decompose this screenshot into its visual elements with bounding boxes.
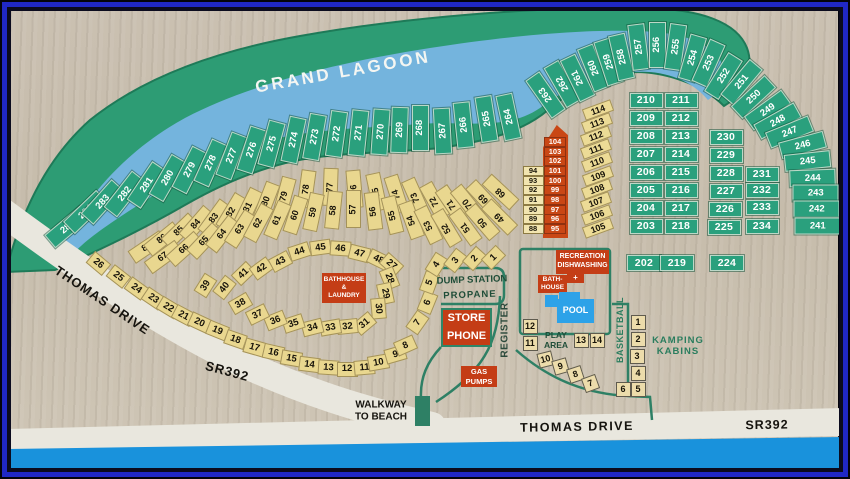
site-242: 242 xyxy=(793,201,839,218)
site-216: 216 xyxy=(665,183,698,198)
site-224: 224 xyxy=(710,255,744,271)
site-number: 265 xyxy=(480,110,492,127)
site-number: 253 xyxy=(700,54,715,72)
walkway-to-beach-label: WALKWAYTO BEACH xyxy=(355,400,407,423)
site-number: 98 xyxy=(551,196,559,204)
site-number: 100 xyxy=(549,177,562,185)
site-number: 12 xyxy=(525,322,535,331)
site-number: 10 xyxy=(372,356,384,367)
site-88: 88 xyxy=(523,224,544,234)
site-number: 40 xyxy=(217,280,231,294)
site-226: 226 xyxy=(709,202,742,217)
site-number: 1 xyxy=(488,252,498,262)
site-number: 6 xyxy=(422,298,433,306)
campground-map-sign: BATHHOUSE&LAUNDRYSTOREPHONEGASPUMPSRECRE… xyxy=(0,0,850,479)
thomas-drive-bottom-label: THOMAS DRIVE xyxy=(520,419,634,435)
site-number: 218 xyxy=(672,221,690,232)
site-number: 216 xyxy=(672,185,690,196)
site-269: 269 xyxy=(390,107,409,154)
site-208: 208 xyxy=(630,129,663,144)
site-number: 209 xyxy=(637,113,655,124)
gas-pumps-box-text: GAS xyxy=(471,367,487,376)
site-number: 93 xyxy=(529,177,537,185)
site-number: 208 xyxy=(637,131,655,142)
site-number: 37 xyxy=(250,307,264,320)
site-number: 210 xyxy=(637,95,655,106)
site-number: 270 xyxy=(375,124,386,140)
site-number: 55 xyxy=(386,209,397,221)
store-phone-box-text: PHONE xyxy=(447,330,486,344)
site-206: 206 xyxy=(630,165,663,180)
site-number: 36 xyxy=(268,314,281,327)
site-number: 60 xyxy=(289,209,301,221)
site-number: 203 xyxy=(637,221,655,232)
basketball-label-line: BASKETBALL xyxy=(615,297,625,363)
site-number: 257 xyxy=(632,39,643,56)
site-204: 204 xyxy=(630,201,663,216)
bathhouse-2-box-text: HOUSE xyxy=(541,284,564,292)
site-102: 102 xyxy=(544,156,566,166)
bathhouse-2-box-text: BATH- xyxy=(543,276,563,284)
site-number: 52 xyxy=(440,221,453,234)
site-number: 43 xyxy=(273,254,287,267)
site-number: 3 xyxy=(634,352,639,361)
site-number: 35 xyxy=(286,317,299,329)
pool-main: POOL xyxy=(557,299,594,323)
site-2: 2 xyxy=(631,332,646,347)
site-number: 202 xyxy=(635,258,653,269)
site-number: 18 xyxy=(228,333,241,345)
site-number: 271 xyxy=(352,125,363,142)
propane-label: PROPANE xyxy=(443,290,497,303)
site-number: 32 xyxy=(341,321,353,332)
site-number: 211 xyxy=(672,95,690,106)
site-number: 243 xyxy=(807,188,823,198)
site-number: 9 xyxy=(556,361,563,371)
site-11: 11 xyxy=(523,336,538,351)
site-57: 57 xyxy=(346,190,361,228)
site-number: 11 xyxy=(525,339,535,348)
site-number: 44 xyxy=(292,245,305,257)
site-number: 104 xyxy=(549,138,562,146)
site-4: 4 xyxy=(631,366,646,381)
walkway-to-beach-label-line: WALKWAY xyxy=(355,400,407,412)
site-number: 266 xyxy=(457,117,468,134)
site-104: 104 xyxy=(544,137,566,147)
bathhouse-laundry-box-text: & xyxy=(342,284,347,292)
site-209: 209 xyxy=(630,111,663,126)
site-225: 225 xyxy=(708,220,741,235)
site-233: 233 xyxy=(746,200,779,215)
recreation-dishwashing-box: RECREATIONDISHWASHING xyxy=(556,250,609,274)
site-number: 254 xyxy=(685,49,699,67)
site-270: 270 xyxy=(370,108,390,155)
site-95: 95 xyxy=(544,224,566,234)
propane-label-line: PROPANE xyxy=(443,290,497,303)
site-229: 229 xyxy=(710,148,743,163)
site-number: 2 xyxy=(635,335,640,344)
site-number: 31 xyxy=(357,316,371,330)
site-number: 24 xyxy=(129,281,143,295)
site-number: 1 xyxy=(635,318,640,327)
site-232: 232 xyxy=(746,183,779,198)
site-number: 62 xyxy=(252,216,265,229)
site-91: 91 xyxy=(523,195,544,205)
site-number: 205 xyxy=(637,185,655,196)
site-213: 213 xyxy=(665,129,698,144)
sr392-bottom-label: SR392 xyxy=(745,417,788,432)
site-89: 89 xyxy=(523,214,544,224)
site-number: 5 xyxy=(424,278,435,286)
site-number: 264 xyxy=(502,108,515,125)
site-number: 263 xyxy=(537,86,554,104)
site-number: 213 xyxy=(672,131,690,142)
store-phone-box: STOREPHONE xyxy=(441,308,492,347)
site-number: 7 xyxy=(586,378,594,388)
site-number: 214 xyxy=(672,149,690,160)
bathhouse-laundry-box-text: BATHHOUSE xyxy=(324,276,365,284)
kamping-kabins-label: KAMPINGKABINS xyxy=(652,336,704,358)
site-number: 7 xyxy=(412,317,423,327)
site-number: 6 xyxy=(620,385,625,394)
kamping-kabins-label-line: KABINS xyxy=(652,347,704,358)
site-number: 13 xyxy=(576,336,586,345)
site-13: 13 xyxy=(574,333,589,348)
site-number: 33 xyxy=(324,321,336,332)
site-number: 15 xyxy=(285,352,297,363)
site-number: 242 xyxy=(808,204,824,214)
site-number: 246 xyxy=(793,138,811,151)
site-number: 255 xyxy=(669,38,681,55)
site-number: 13 xyxy=(322,362,333,372)
site-215: 215 xyxy=(665,165,698,180)
site-5: 5 xyxy=(631,382,646,397)
site-number: 5 xyxy=(635,385,640,394)
walkway-strip xyxy=(415,396,430,426)
site-number: 273 xyxy=(308,128,320,145)
site-number: 3 xyxy=(450,255,461,265)
site-number: 49 xyxy=(492,210,505,223)
site-number: 50 xyxy=(475,215,488,228)
site-number: 39 xyxy=(198,278,212,292)
site-number: 88 xyxy=(529,225,537,233)
site-number: 228 xyxy=(717,168,735,179)
site-number: 68 xyxy=(493,185,506,198)
site-number: 204 xyxy=(637,203,655,214)
site-number: 251 xyxy=(732,73,749,91)
store-phone-box-text: STORE xyxy=(448,312,486,326)
walkway-to-beach-label-line: TO BEACH xyxy=(355,411,407,423)
thomas-drive-bottom-label-line: THOMAS DRIVE xyxy=(520,419,634,435)
site-number: 17 xyxy=(248,341,261,353)
site-210: 210 xyxy=(630,93,663,108)
site-number: 94 xyxy=(529,167,537,175)
site-number: 99 xyxy=(551,186,559,194)
site-number: 234 xyxy=(753,221,771,232)
site-number: 227 xyxy=(717,186,735,197)
site-219: 219 xyxy=(660,255,694,271)
site-number: 91 xyxy=(529,196,537,204)
gas-pumps-box-text: PUMPS xyxy=(466,377,493,386)
site-number: 233 xyxy=(753,202,771,213)
site-number: 4 xyxy=(431,259,442,269)
site-number: 206 xyxy=(637,167,655,178)
site-number: 14 xyxy=(303,359,315,370)
site-230: 230 xyxy=(710,130,743,145)
site-number: 207 xyxy=(637,149,655,160)
site-1: 1 xyxy=(631,315,646,330)
site-number: 46 xyxy=(334,243,345,253)
store-walkway-line xyxy=(421,347,441,398)
pool-main-text: POOL xyxy=(563,305,589,316)
site-number: 19 xyxy=(210,324,223,337)
site-number: 276 xyxy=(244,141,258,159)
site-202: 202 xyxy=(627,255,661,271)
site-207: 207 xyxy=(630,147,663,162)
play-area-label-line: AREA xyxy=(544,341,568,351)
site-number: 10 xyxy=(539,353,551,364)
site-number: 58 xyxy=(328,205,338,216)
site-number: 278 xyxy=(202,154,217,172)
site-94: 94 xyxy=(523,166,544,176)
site-268: 268 xyxy=(412,105,429,151)
site-234: 234 xyxy=(746,219,779,234)
site-number: 90 xyxy=(529,206,537,214)
recreation-cross-tab-text: + xyxy=(573,273,578,283)
site-number: 226 xyxy=(716,204,734,215)
site-227: 227 xyxy=(710,184,743,199)
site-number: 45 xyxy=(314,242,326,253)
bathhouse-laundry-box-text: LAUNDRY xyxy=(328,292,360,300)
site-96: 96 xyxy=(544,214,566,224)
site-12: 12 xyxy=(523,319,538,334)
site-98: 98 xyxy=(544,195,566,205)
site-number: 38 xyxy=(233,296,247,310)
site-number: 256 xyxy=(652,37,662,53)
site-number: 4 xyxy=(635,369,640,378)
site-10: 10 xyxy=(536,350,554,368)
site-number: 245 xyxy=(799,155,816,166)
site-number: 97 xyxy=(551,206,559,214)
site-number: 215 xyxy=(672,167,690,178)
site-number: 56 xyxy=(368,205,378,216)
site-number: 96 xyxy=(551,215,559,223)
site-number: 260 xyxy=(586,59,601,77)
site-number: 20 xyxy=(192,315,206,328)
site-number: 241 xyxy=(809,221,825,231)
site-101: 101 xyxy=(544,166,566,176)
site-212: 212 xyxy=(665,111,698,126)
site-256: 256 xyxy=(649,22,666,68)
site-241: 241 xyxy=(794,218,840,235)
site-number: 103 xyxy=(549,148,562,156)
site-214: 214 xyxy=(665,147,698,162)
site-number: 212 xyxy=(672,113,690,124)
site-6: 6 xyxy=(616,382,631,397)
site-267: 267 xyxy=(432,108,451,155)
site-number: 232 xyxy=(753,185,771,196)
site-number: 219 xyxy=(668,258,686,269)
bathhouse-laundry-box: BATHHOUSE&LAUNDRY xyxy=(322,273,366,303)
site-number: 275 xyxy=(264,135,277,153)
site-211: 211 xyxy=(665,93,698,108)
gas-pumps-box: GASPUMPS xyxy=(461,366,497,387)
site-number: 51 xyxy=(458,220,471,233)
site-number: 47 xyxy=(353,247,366,259)
recreation-cross-tab: + xyxy=(567,273,584,283)
site-number: 274 xyxy=(287,131,300,148)
recreation-dishwashing-box-text: RECREATION xyxy=(560,253,606,262)
site-number: 8 xyxy=(571,369,579,379)
site-number: 277 xyxy=(224,147,239,165)
site-217: 217 xyxy=(665,201,698,216)
site-3: 3 xyxy=(630,349,645,364)
site-number: 217 xyxy=(672,203,690,214)
site-14: 14 xyxy=(590,333,605,348)
bathhouse-2-box: BATH-HOUSE xyxy=(538,275,567,293)
site-number: 225 xyxy=(715,222,733,233)
basketball-label: BASKETBALL xyxy=(615,297,625,363)
site-number: 26 xyxy=(91,256,105,270)
sr392-bottom-label-line: SR392 xyxy=(745,417,788,432)
site-231: 231 xyxy=(746,167,779,182)
site-number: 229 xyxy=(717,150,735,161)
site-243: 243 xyxy=(792,185,838,202)
site-number: 95 xyxy=(551,225,559,233)
site-number: 42 xyxy=(254,261,268,275)
site-number: 61 xyxy=(271,214,283,227)
site-number: 8 xyxy=(401,340,410,351)
site-number: 2 xyxy=(469,253,480,263)
site-number: 34 xyxy=(306,321,319,333)
play-area-label: PLAYAREA xyxy=(544,331,568,351)
site-number: 16 xyxy=(267,346,279,358)
site-number: 272 xyxy=(330,125,342,142)
site-number: 14 xyxy=(592,336,602,345)
site-99: 99 xyxy=(544,185,566,195)
site-number: 231 xyxy=(753,169,771,180)
site-number: 30 xyxy=(373,302,383,313)
site-number: 101 xyxy=(549,167,562,175)
site-number: 267 xyxy=(437,123,447,139)
site-218: 218 xyxy=(665,219,698,234)
site-number: 268 xyxy=(415,120,425,136)
site-number: 224 xyxy=(718,258,736,269)
site-number: 230 xyxy=(717,132,735,143)
site-205: 205 xyxy=(630,183,663,198)
site-number: 269 xyxy=(394,122,404,138)
site-228: 228 xyxy=(710,166,743,181)
site-92: 92 xyxy=(523,185,544,195)
site-number: 59 xyxy=(308,206,319,218)
site-number: 244 xyxy=(804,173,820,183)
pool-kiddie xyxy=(545,295,558,307)
site-45: 45 xyxy=(309,238,332,256)
site-203: 203 xyxy=(630,219,663,234)
site-number: 102 xyxy=(549,157,562,165)
site-number: 12 xyxy=(342,364,353,374)
recreation-dishwashing-box-text: DISHWASHING xyxy=(557,262,607,271)
register-label-line: REGISTER xyxy=(499,302,511,357)
site-number: 57 xyxy=(348,204,357,214)
site-number: 258 xyxy=(615,48,628,66)
site-number: 261 xyxy=(569,69,584,87)
register-label: REGISTER xyxy=(499,302,511,357)
site-number: 92 xyxy=(529,186,537,194)
site-number: 89 xyxy=(529,215,537,223)
site-number: 25 xyxy=(111,269,125,283)
